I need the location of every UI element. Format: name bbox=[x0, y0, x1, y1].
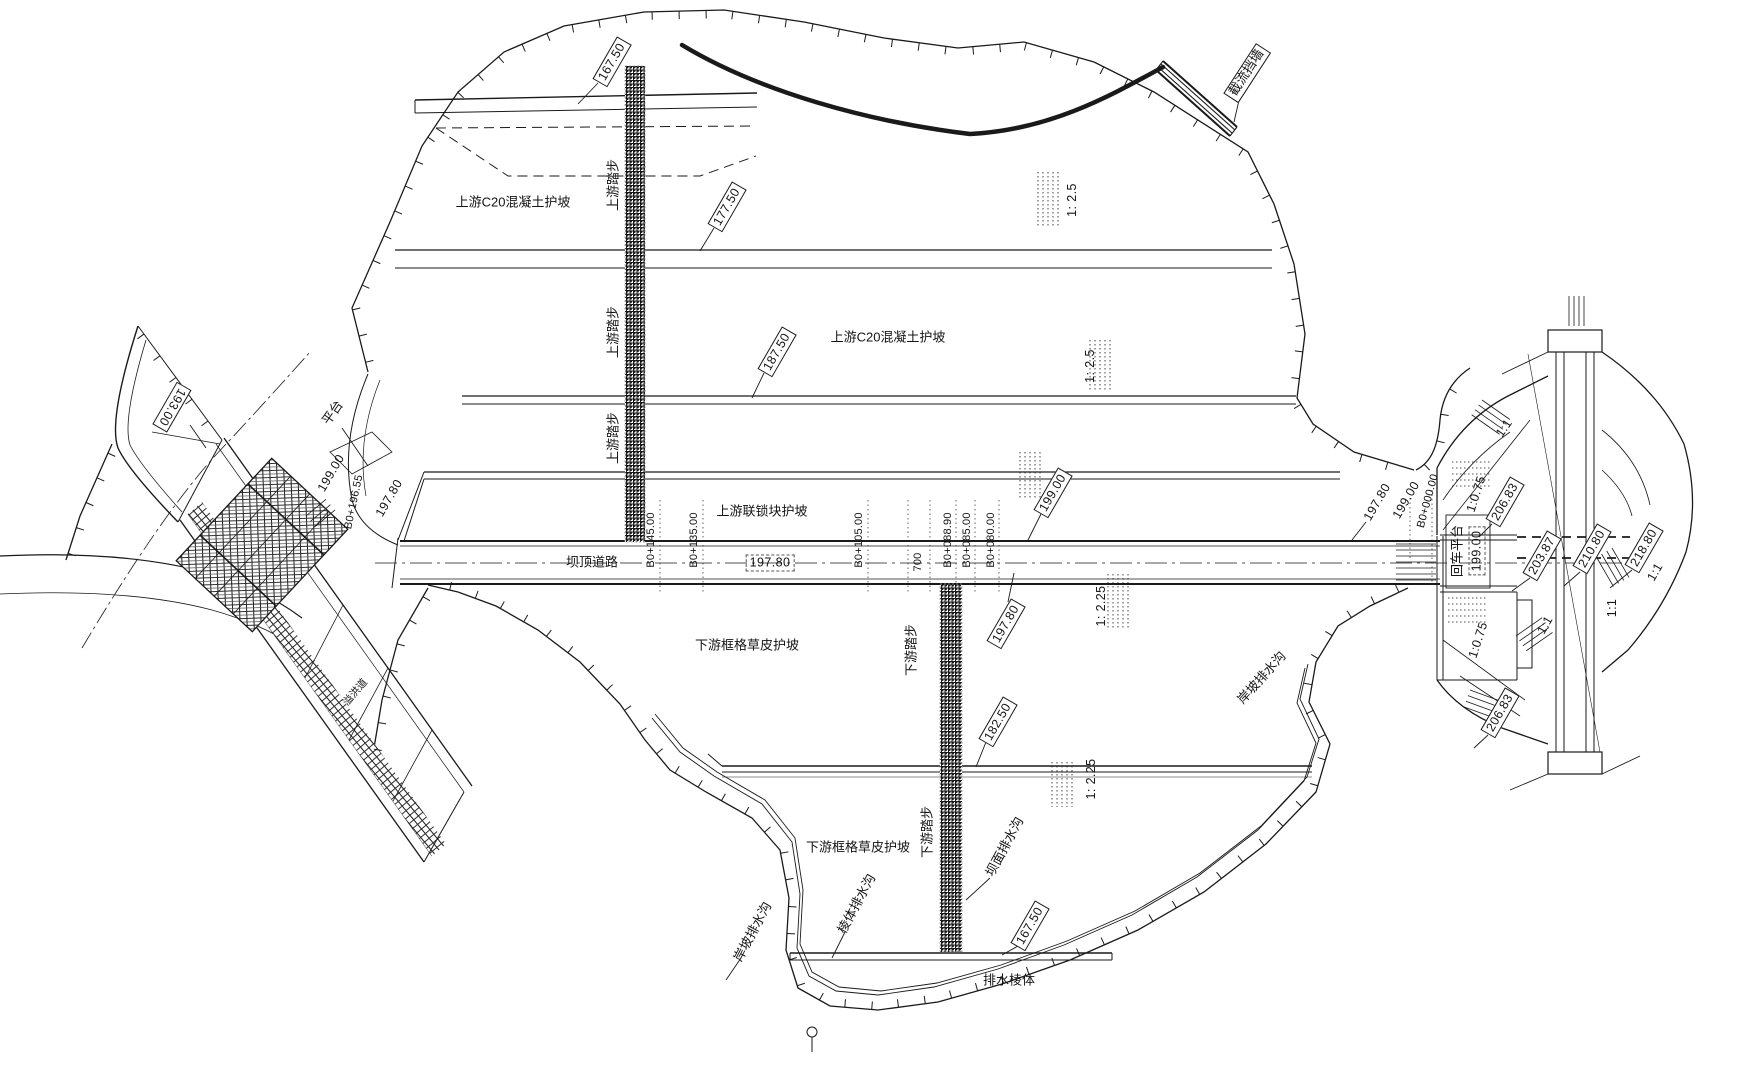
dimension-700: 700 bbox=[912, 553, 924, 572]
crest-road-label: 坝顶道路 bbox=[566, 556, 618, 571]
leader-lines bbox=[190, 83, 1632, 980]
station-b0-080: B0+080.00 bbox=[985, 512, 997, 567]
upstream-concrete-slope-label-1: 上游C20混凝土护坡 bbox=[456, 196, 571, 211]
turnaround-platform-label: 回车平台 bbox=[1451, 525, 1466, 577]
upstream-steps-label-1: 上游踏步 bbox=[607, 159, 622, 211]
chute-bottom-cap bbox=[1548, 752, 1602, 774]
downstream-steps-label-1: 下游踏步 bbox=[905, 624, 920, 676]
left-edge-boundary bbox=[66, 444, 112, 560]
crest-road-elevation: 197.80 bbox=[746, 555, 795, 572]
closure-wall-bar bbox=[1156, 61, 1237, 136]
upstream-steps-label-2: 上游踏步 bbox=[607, 306, 622, 358]
right-fan bbox=[1602, 352, 1693, 672]
station-b0-085: B0+085.00 bbox=[961, 512, 973, 567]
upstream-concrete-slope-label-2: 上游C20混凝土护坡 bbox=[831, 331, 946, 346]
right-connect-arc bbox=[1416, 368, 1470, 470]
station-b0-105: B0+105.00 bbox=[853, 512, 865, 567]
downstream-steps-label-2: 下游踏步 bbox=[921, 806, 936, 858]
slope-ratio-2-5-mid: 1: 2.5 bbox=[1083, 349, 1097, 383]
haul-road bbox=[682, 45, 1237, 136]
slope-ratio-2-25-bottom: 1: 2.25 bbox=[1084, 758, 1098, 799]
downstream-steps-strip bbox=[940, 584, 962, 952]
station-b0-145: B0+145.00 bbox=[645, 512, 657, 567]
right-slope-1-1-mid: 1:1 bbox=[1605, 599, 1619, 618]
left-spillway bbox=[0, 326, 472, 862]
downstream-grass-slope-label-1: 下游框格草皮护坡 bbox=[695, 639, 799, 654]
station-b0-135: B0+135.00 bbox=[688, 512, 700, 567]
slope-ratio-2-25-top: 1: 2.25 bbox=[1094, 585, 1108, 626]
platform-left-edge bbox=[1437, 536, 1443, 680]
dam-plan-drawing: 上游C20混凝土护坡 上游C20混凝土护坡 上游踏步 上游踏步 上游踏步 167… bbox=[0, 0, 1741, 1079]
crest-road bbox=[375, 538, 1630, 588]
station-b0-088-90: B0+088.90 bbox=[942, 512, 954, 567]
upstream-berms bbox=[395, 250, 1340, 541]
upstream-interlock-slope-label: 上游联锁块护坡 bbox=[716, 505, 807, 520]
downstream-grass-slope-label-2: 下游框格草皮护坡 bbox=[806, 841, 910, 856]
turnaround-elevation: 199.00 bbox=[1469, 527, 1486, 576]
cofferdam-band bbox=[415, 93, 757, 176]
upstream-boundary bbox=[352, 10, 1414, 470]
slope-ratio-2-5-top: 1: 2.5 bbox=[1065, 183, 1079, 217]
upstream-steps-label-3: 上游踏步 bbox=[607, 412, 622, 464]
chute-top-cap bbox=[1548, 330, 1602, 352]
drain-prism-label: 排水棱体 bbox=[983, 974, 1035, 989]
upstream-steps-strip bbox=[625, 66, 645, 542]
axis-end-symbol bbox=[807, 1027, 817, 1052]
left-lower-boundary bbox=[372, 588, 428, 760]
